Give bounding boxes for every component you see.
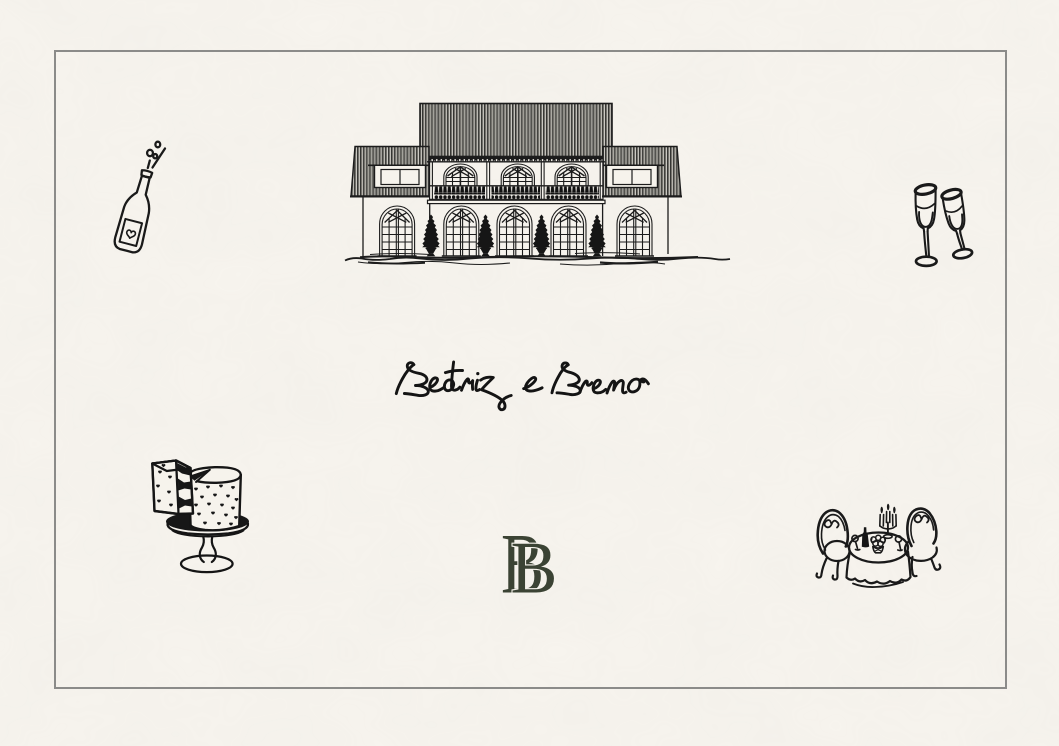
svg-text:B: B <box>511 527 558 609</box>
